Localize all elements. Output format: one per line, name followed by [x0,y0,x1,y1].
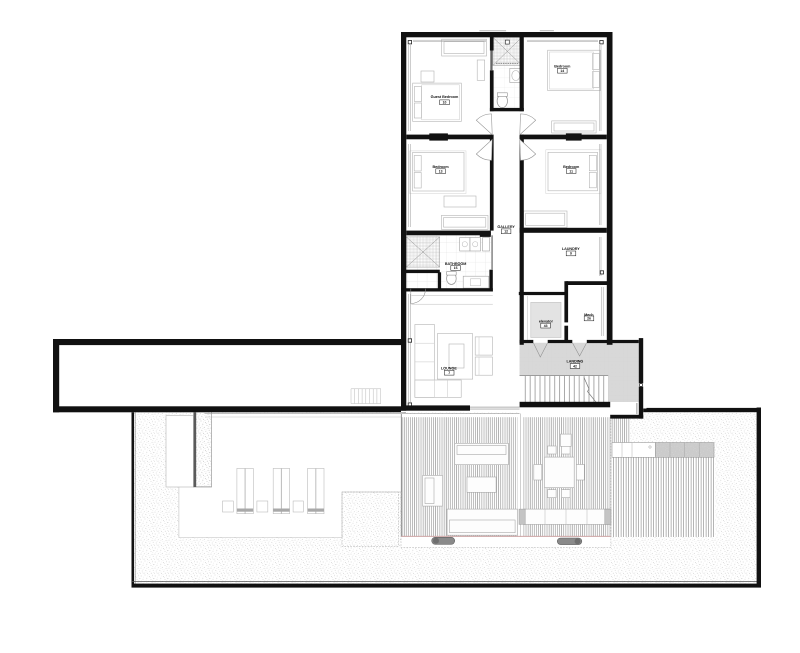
svg-text:BATHROOM: BATHROOM [445,262,466,266]
svg-text:GALLERY: GALLERY [497,225,515,229]
svg-text:12: 12 [504,230,508,234]
svg-text:10: 10 [443,101,447,105]
svg-text:Guest Bedroom: Guest Bedroom [431,95,459,99]
svg-text:26: 26 [587,317,591,321]
svg-text:15: 15 [454,266,458,270]
svg-text:7: 7 [448,371,450,375]
svg-text:LANDING: LANDING [566,360,583,364]
svg-text:11: 11 [569,169,573,173]
svg-text:42: 42 [573,364,577,368]
svg-text:LAUNDRY: LAUNDRY [562,247,580,251]
svg-text:Bedroom: Bedroom [433,165,450,169]
svg-text:14: 14 [560,69,564,73]
svg-text:43: 43 [544,324,548,328]
svg-text:Bedroom: Bedroom [563,165,580,169]
svg-text:13: 13 [439,170,443,174]
svg-text:9: 9 [570,252,572,256]
svg-text:Bedroom: Bedroom [554,65,571,69]
